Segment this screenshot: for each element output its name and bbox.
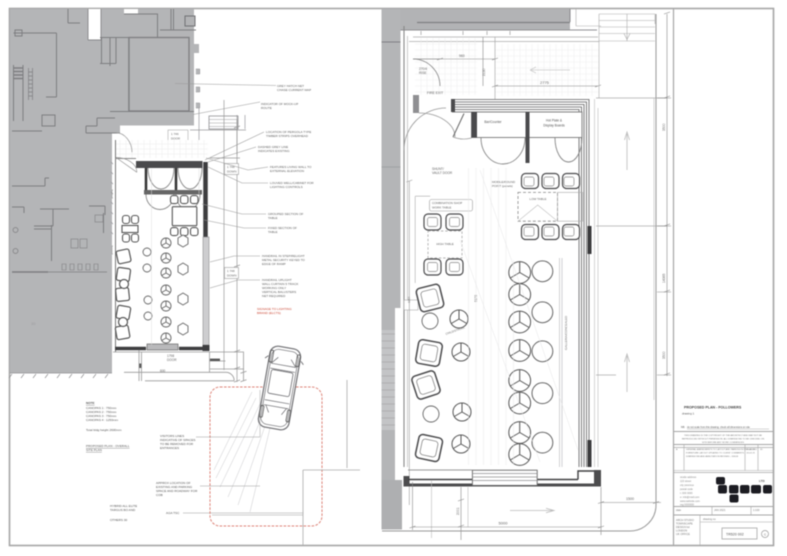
svg-text:1 748: 1 748 <box>227 269 235 273</box>
svg-text:CHASE CURRENT MAP: CHASE CURRENT MAP <box>277 88 311 92</box>
svg-text:SITE PLAN: SITE PLAN <box>86 448 102 452</box>
svg-text:ARCH STUDIO: ARCH STUDIO <box>676 518 694 522</box>
svg-text:TIMBER STRIPS OVERHEAD: TIMBER STRIPS OVERHEAD <box>266 134 309 138</box>
svg-text:DOOR: DOOR <box>167 358 177 362</box>
svg-text:studio address: studio address <box>680 476 697 479</box>
svg-text:THIS DRAWING IS THE COPYRIGHT: THIS DRAWING IS THE COPYRIGHT OF THE ARC… <box>684 434 762 437</box>
svg-text:city province: city province <box>680 484 695 487</box>
svg-text:EDGE OF RAMP: EDGE OF RAMP <box>262 262 286 266</box>
svg-text:DOOR: DOOR <box>171 137 181 141</box>
svg-text:Bar/Counter: Bar/Counter <box>484 120 502 124</box>
svg-text:OTHERS 30: OTHERS 30 <box>110 518 127 522</box>
svg-text:Total bldg height 2600mm: Total bldg height 2600mm <box>86 428 122 432</box>
svg-text:Hot Plate &: Hot Plate & <box>546 119 563 123</box>
svg-text:1500: 1500 <box>626 497 634 501</box>
svg-text:960: 960 <box>459 54 465 58</box>
svg-text:NB:: NB: <box>681 426 685 429</box>
svg-text:ENTRANCES: ENTRANCES <box>160 446 179 450</box>
svg-text:TR520 002: TR520 002 <box>726 533 744 537</box>
svg-text:INDICATES EXISTING: INDICATES EXISTING <box>258 149 290 153</box>
svg-text:GALLERIA/CONCEALED: GALLERIA/CONCEALED <box>564 315 568 350</box>
svg-text:EXTERNAL ELEVATION: EXTERNAL ELEVATION <box>270 169 304 173</box>
svg-text:SITE BEFORE ANY WORK COMMENCES: SITE BEFORE ANY WORK COMMENCES <box>702 441 744 444</box>
svg-text:DESIGN ltd: DESIGN ltd <box>676 525 690 529</box>
svg-text:LTD: LTD <box>759 479 765 483</box>
svg-text:2001: 2001 <box>456 507 460 515</box>
svg-text:REPRODUCED WITHOUT PERMISSION.: REPRODUCED WITHOUT PERMISSION. ALL DIMEN… <box>682 438 765 441</box>
svg-text:VAULT DOOR: VAULT DOOR <box>432 171 453 175</box>
svg-text:t: 000 0000: t: 000 0000 <box>680 492 693 495</box>
svg-text:Display Boards: Display Boards <box>543 124 565 128</box>
svg-text:AGA TSC: AGA TSC <box>166 511 180 515</box>
svg-text:UK OFFICE: UK OFFICE <box>676 532 690 536</box>
svg-text:30: 30 <box>31 321 36 326</box>
svg-text:BRAND (ELCTS): BRAND (ELCTS) <box>257 311 281 315</box>
svg-text:1:100: 1:100 <box>753 508 760 512</box>
svg-text:DOWN: DOWN <box>227 274 237 278</box>
svg-text:postal code: postal code <box>680 488 693 491</box>
svg-text:LIGHTING CONTROLS: LIGHTING CONTROLS <box>270 185 303 189</box>
svg-text:WORK TABLE: WORK TABLE <box>432 206 451 210</box>
svg-text:do not scale from this drawing: do not scale from this drawing. check al… <box>687 426 751 429</box>
svg-text:TABLE: TABLE <box>268 216 278 220</box>
svg-text:14365: 14365 <box>662 273 666 283</box>
svg-text:drawing no: drawing no <box>703 517 716 521</box>
svg-text:NOTE: NOTE <box>86 401 95 405</box>
svg-text:TABLE: TABLE <box>268 230 278 234</box>
svg-text:CANOPAS 4 : 1250mm: CANOPAS 4 : 1250mm <box>86 418 119 422</box>
svg-text:COB: COB <box>156 493 163 497</box>
svg-text:RISE: RISE <box>419 71 426 75</box>
svg-text:5000: 5000 <box>499 521 509 526</box>
svg-text:1 748: 1 748 <box>227 165 235 169</box>
svg-text:JAN 2021: JAN 2021 <box>714 508 726 512</box>
svg-text:2775: 2775 <box>540 80 550 85</box>
svg-text:3500: 3500 <box>662 123 666 131</box>
svg-text:1 746: 1 746 <box>171 132 179 136</box>
svg-text:01.02.21: 01.02.21 <box>747 449 756 451</box>
svg-text:HIGH TABLE: HIGH TABLE <box>436 242 454 246</box>
svg-text:LOW TABLE: LOW TABLE <box>530 197 547 201</box>
svg-text:COMBINATION SHOP: COMBINATION SHOP <box>432 201 462 205</box>
svg-text:e: info@mail.com: e: info@mail.com <box>680 496 699 499</box>
svg-text:POINT (panels): POINT (panels) <box>492 184 513 188</box>
svg-text:DOWN: DOWN <box>227 170 237 174</box>
svg-text:drawing 1: drawing 1 <box>682 412 695 416</box>
svg-text:LONDON: LONDON <box>676 529 687 533</box>
svg-text:2130: 2130 <box>482 68 486 76</box>
svg-text:3500: 3500 <box>662 351 666 359</box>
svg-text:DIMENSIONS AND ANNOTATION REVI: DIMENSIONS AND ANNOTATION REVISED - ISSU… <box>686 455 739 458</box>
svg-text:FIRE EXIT: FIRE EXIT <box>427 91 443 95</box>
svg-text:date: date <box>676 508 682 512</box>
svg-text:123 street: 123 street <box>680 480 691 483</box>
svg-text:TARGUS BO AND: TARGUS BO AND <box>110 508 136 512</box>
svg-text:ROUTE: ROUTE <box>261 106 272 110</box>
svg-text:NET REQUIRED: NET REQUIRED <box>262 294 286 298</box>
svg-text:05.02.21: 05.02.21 <box>747 453 756 455</box>
svg-text:FURNITURE LAYOUT UPDATED TO CL: FURNITURE LAYOUT UPDATED TO CLIENT COMME… <box>686 452 745 455</box>
svg-text:PROPOSED PLAN - FOLLOWERS: PROPOSED PLAN - FOLLOWERS <box>684 406 742 410</box>
svg-text:600: 600 <box>160 369 166 373</box>
svg-text:JD: JD <box>760 449 763 451</box>
svg-text:TOWNSCAPE: TOWNSCAPE <box>676 522 693 526</box>
